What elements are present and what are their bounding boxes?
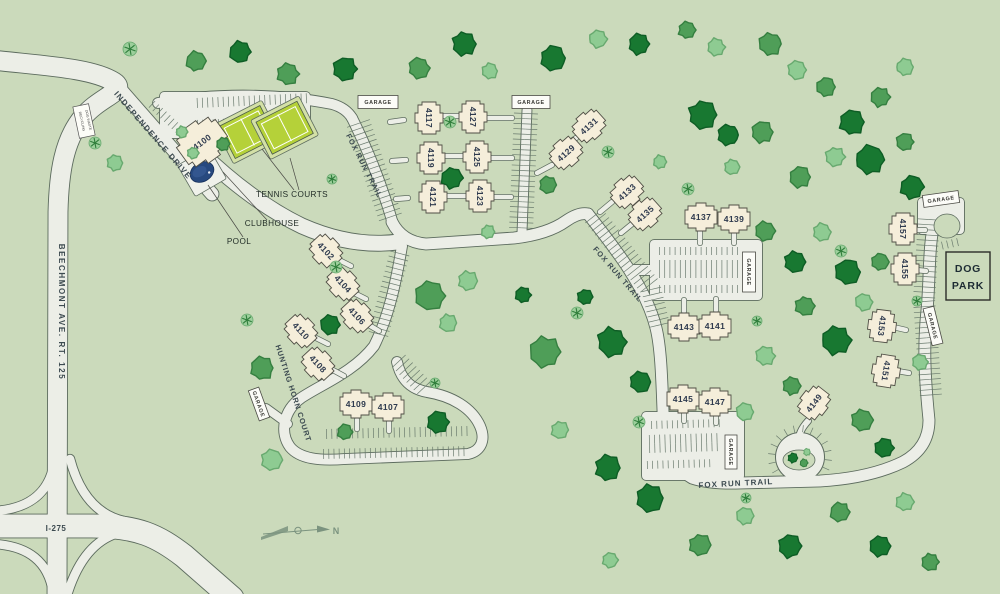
- compass-north-label: N: [333, 526, 340, 536]
- parking-island: [934, 214, 960, 238]
- shrub-icon: [912, 296, 922, 306]
- building-4139: 4139: [718, 205, 750, 233]
- building-4117: 4117: [415, 102, 443, 134]
- building-label-4121: 4121: [428, 187, 438, 208]
- building-4127: 4127: [459, 101, 487, 133]
- building-4109: 4109: [340, 390, 372, 418]
- building-label-4109: 4109: [346, 399, 367, 409]
- building-label-4155: 4155: [900, 259, 910, 280]
- street-label-2: I-275: [46, 524, 67, 533]
- garage-1: GARAGE: [358, 96, 398, 109]
- dog-park-label: PARK: [952, 280, 984, 292]
- garage-label: GARAGE: [364, 100, 391, 106]
- garage-2: GARAGE: [512, 96, 550, 109]
- shrub-icon: [571, 307, 583, 319]
- tree-icon: [217, 137, 230, 150]
- building-4125: 4125: [463, 141, 491, 173]
- building-label-4145: 4145: [673, 394, 694, 404]
- island-bush: [804, 449, 811, 456]
- street-label-1: BEECHMONT AVE. RT. 125: [57, 244, 66, 381]
- shrub-icon: [123, 42, 137, 56]
- shrub-icon: [330, 261, 342, 273]
- building-4147: 4147: [699, 388, 731, 416]
- building-label-4139: 4139: [724, 214, 745, 224]
- island-bush: [800, 459, 808, 467]
- building-4145: 4145: [667, 385, 699, 413]
- building-4121: 4121: [419, 181, 447, 213]
- building-4107: 4107: [372, 393, 404, 421]
- shrub-icon: [741, 493, 751, 503]
- walk: [392, 160, 406, 161]
- building-4143: 4143: [668, 313, 700, 341]
- garage-label: GARAGE: [727, 438, 733, 465]
- shrub-icon: [602, 146, 614, 158]
- garage-label: GARAGE: [745, 258, 751, 285]
- tree-icon: [321, 315, 341, 335]
- walk: [390, 120, 404, 122]
- building-label-4157: 4157: [898, 219, 908, 240]
- building-4155: 4155: [891, 253, 919, 285]
- building-4123: 4123: [466, 180, 494, 212]
- map-background: [0, 0, 1000, 594]
- shrub-icon: [241, 314, 253, 326]
- tree-icon: [737, 403, 754, 421]
- building-4141: 4141: [699, 312, 731, 340]
- tree-icon: [790, 167, 810, 189]
- building-4137: 4137: [685, 203, 717, 231]
- shrub-icon: [752, 316, 762, 326]
- building-label-4117: 4117: [424, 108, 434, 128]
- site-map-page: GARAGEGARAGEGARAGEGARAGEGARAGEGARAGEGARA…: [0, 0, 1000, 594]
- garage-4: GARAGE: [725, 435, 737, 469]
- shrub-icon: [835, 245, 847, 257]
- building-4119: 4119: [417, 142, 445, 174]
- shrub-icon: [89, 137, 101, 149]
- dog-park-label: DOG: [955, 263, 981, 275]
- building-label-4125: 4125: [472, 147, 482, 168]
- building-label-4123: 4123: [475, 186, 485, 207]
- garage-label: GARAGE: [517, 100, 544, 106]
- building-label-4137: 4137: [691, 212, 712, 222]
- tree-icon: [578, 290, 594, 305]
- building-label-4143: 4143: [674, 322, 695, 332]
- pool-label: POOL: [227, 237, 251, 246]
- building-label-4147: 4147: [705, 397, 726, 407]
- tennis-courts-label: TENNIS COURTS: [256, 190, 328, 199]
- tree-icon: [540, 176, 557, 193]
- building-label-4119: 4119: [426, 148, 436, 168]
- walk: [396, 198, 408, 199]
- property-site-map: GARAGEGARAGEGARAGEGARAGEGARAGEGARAGEGARA…: [0, 0, 1000, 594]
- shrub-icon: [327, 174, 337, 184]
- shrub-icon: [430, 378, 440, 388]
- building-label-4107: 4107: [378, 402, 399, 412]
- tree-icon: [896, 134, 914, 151]
- building-label-4127: 4127: [468, 107, 478, 128]
- building-label-4141: 4141: [705, 321, 726, 331]
- shrub-icon: [444, 116, 456, 128]
- building-4157: 4157: [889, 213, 917, 245]
- shrub-icon: [682, 183, 694, 195]
- garage-3: GARAGE: [743, 252, 756, 292]
- shrub-icon: [633, 416, 645, 428]
- clubhouse-label: CLUBHOUSE: [245, 219, 300, 228]
